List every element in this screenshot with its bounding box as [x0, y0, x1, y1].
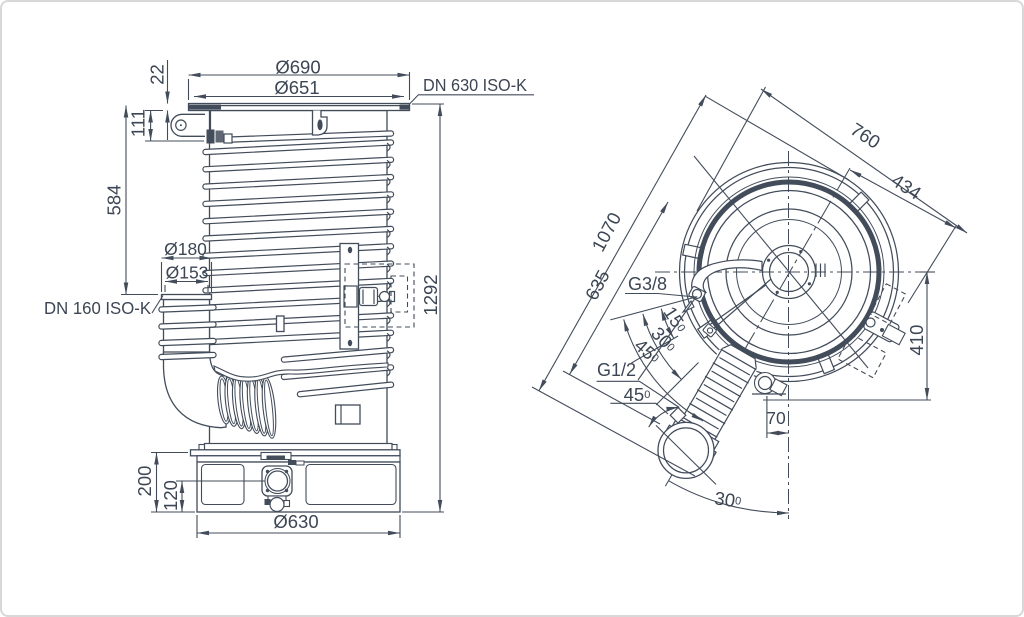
svg-text:200: 200: [134, 466, 155, 497]
svg-text:1292: 1292: [420, 274, 441, 315]
svg-text:22: 22: [147, 64, 168, 85]
svg-text:G3/8: G3/8: [628, 274, 667, 294]
svg-text:Ø690: Ø690: [275, 57, 320, 78]
svg-text:Ø651: Ø651: [274, 77, 319, 98]
svg-text:111: 111: [128, 109, 149, 137]
svg-text:120: 120: [160, 480, 181, 511]
svg-text:70: 70: [766, 408, 786, 428]
svg-text:Ø180: Ø180: [164, 239, 207, 259]
svg-text:DN 630 ISO-K: DN 630 ISO-K: [423, 75, 527, 95]
svg-text:DN 160 ISO-K: DN 160 ISO-K: [44, 298, 151, 318]
svg-text:584: 584: [104, 185, 125, 216]
svg-text:G1/2: G1/2: [597, 360, 636, 380]
svg-text:Ø630: Ø630: [273, 511, 318, 532]
svg-text:Ø153: Ø153: [166, 263, 209, 283]
svg-text:410: 410: [906, 325, 927, 356]
